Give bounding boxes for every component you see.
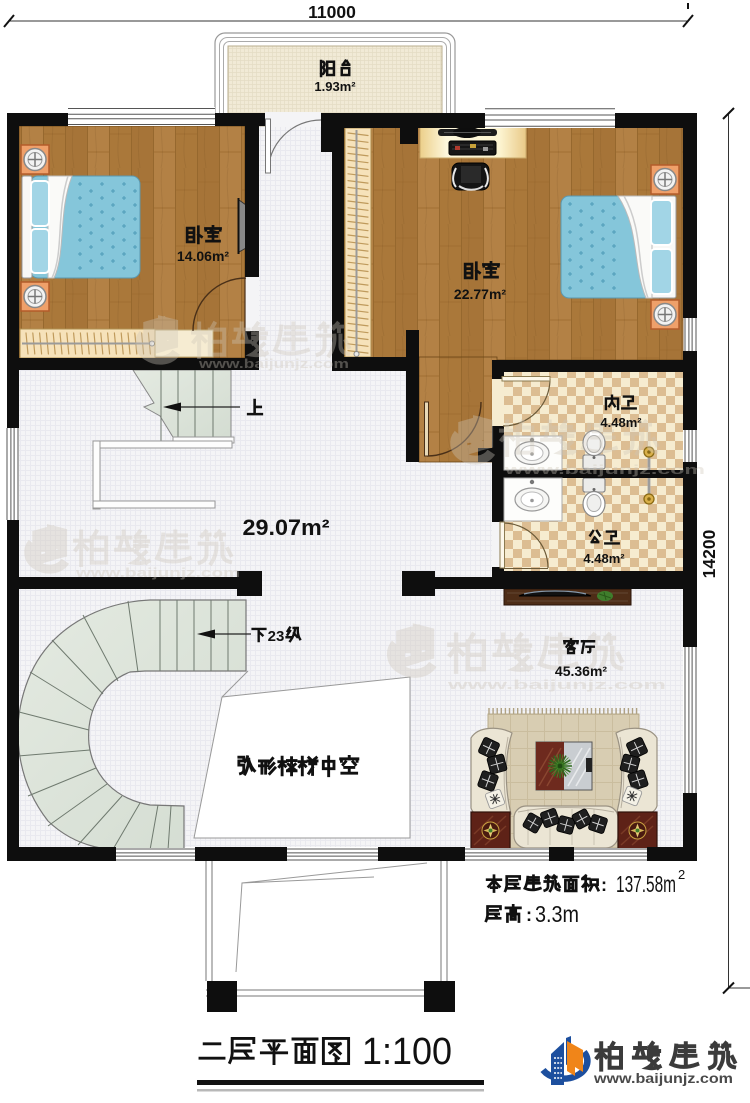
svg-text:www.baijunjz.com: www.baijunjz.com [446,678,666,692]
svg-text:1:100: 1:100 [362,1031,452,1073]
svg-text:1.93m²: 1.93m² [314,79,356,94]
svg-text:www.baijunjz.com: www.baijunjz.com [503,463,705,477]
svg-text:2: 2 [678,867,685,882]
svg-text:3.3m: 3.3m [535,901,579,927]
svg-text:www.baijunjz.com: www.baijunjz.com [74,566,240,580]
svg-text:4.48m²: 4.48m² [600,415,642,430]
svg-text:23: 23 [268,628,285,645]
svg-text:www.baijunjz.com: www.baijunjz.com [593,1070,733,1086]
svg-text:14200: 14200 [699,529,719,578]
svg-text:4.48m²: 4.48m² [583,551,625,566]
svg-text:14.06m²: 14.06m² [177,248,229,264]
svg-text:22.77m²: 22.77m² [454,286,506,302]
svg-text:137.58m: 137.58m [616,871,676,897]
svg-text:29.07m²: 29.07m² [243,515,330,540]
svg-text:www.baijunjz.com: www.baijunjz.com [198,357,349,371]
svg-text:11000: 11000 [308,2,356,22]
svg-text:45.36m²: 45.36m² [555,663,607,679]
svg-text::: : [526,905,532,925]
svg-text::: : [601,875,607,895]
